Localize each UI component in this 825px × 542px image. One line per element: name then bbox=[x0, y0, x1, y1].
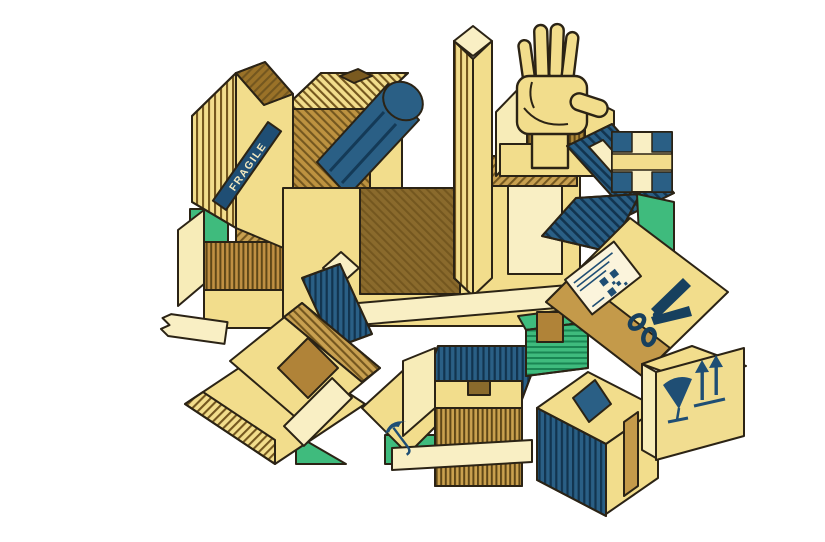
corner-box bbox=[537, 372, 658, 516]
symbols-box bbox=[642, 346, 746, 460]
moving-boxes-illustration: FRAGILE bbox=[40, 16, 825, 526]
illustration-svg: FRAGILE bbox=[40, 16, 825, 526]
center-column bbox=[454, 26, 492, 296]
